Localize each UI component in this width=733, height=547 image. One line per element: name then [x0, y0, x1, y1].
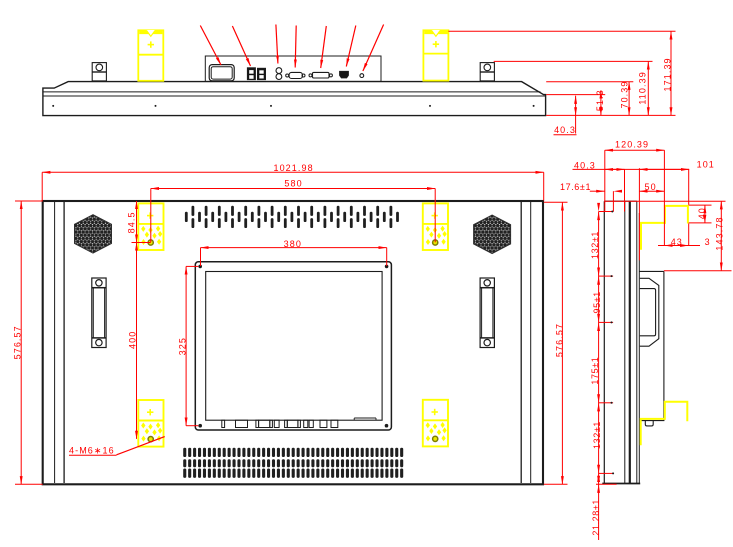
svg-text:84.5: 84.5 [127, 211, 137, 233]
svg-text:175±1: 175±1 [590, 357, 600, 385]
svg-text:132±1: 132±1 [590, 231, 600, 259]
svg-text:1021.98: 1021.98 [273, 163, 313, 173]
svg-text:110.39: 110.39 [638, 71, 648, 104]
svg-text:40.3: 40.3 [554, 125, 576, 135]
svg-text:576.57: 576.57 [554, 323, 564, 357]
svg-text:143.78: 143.78 [714, 216, 724, 250]
svg-text:132±1: 132±1 [592, 421, 602, 449]
svg-text:120.39: 120.39 [615, 140, 649, 150]
svg-text:325: 325 [178, 337, 188, 355]
svg-text:4-M6∗16: 4-M6∗16 [69, 446, 115, 456]
svg-text:40: 40 [697, 207, 707, 219]
svg-text:101: 101 [697, 160, 715, 170]
svg-text:51.3: 51.3 [595, 89, 605, 111]
svg-text:43: 43 [671, 237, 683, 247]
svg-text:380: 380 [284, 239, 302, 249]
svg-text:171.39: 171.39 [662, 57, 672, 91]
svg-text:400: 400 [127, 331, 137, 349]
svg-text:580: 580 [284, 178, 302, 188]
svg-text:40.3: 40.3 [574, 160, 596, 170]
svg-text:21.28±1: 21.28±1 [591, 499, 601, 536]
svg-text:576.57: 576.57 [12, 325, 22, 359]
svg-text:50: 50 [645, 182, 657, 192]
svg-text:3: 3 [705, 237, 711, 247]
svg-text:70.39: 70.39 [620, 80, 630, 108]
svg-text:95±1: 95±1 [592, 291, 602, 313]
svg-text:17.6±1: 17.6±1 [560, 182, 591, 192]
